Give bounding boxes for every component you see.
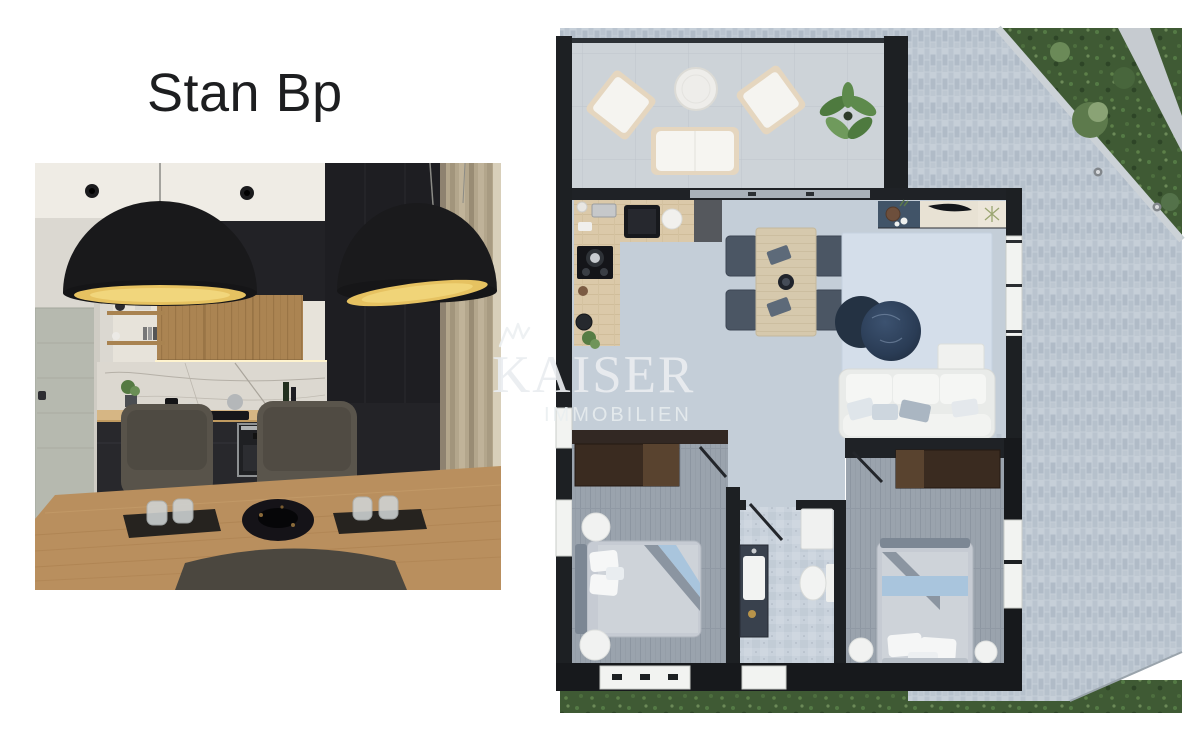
floor-plan bbox=[548, 22, 1188, 717]
pouf bbox=[580, 630, 610, 660]
dining-chair bbox=[726, 236, 758, 276]
crown-icon bbox=[498, 322, 532, 348]
dining-chair bbox=[814, 236, 846, 276]
hallway bbox=[723, 434, 845, 509]
kitchen-photo-art bbox=[35, 163, 501, 590]
pouf bbox=[849, 638, 873, 662]
terrace-round-table bbox=[675, 68, 717, 110]
pot bbox=[576, 314, 592, 330]
window-living bbox=[1006, 236, 1022, 336]
bedroom-left bbox=[556, 430, 740, 691]
pouf bbox=[582, 513, 610, 541]
coffee-table bbox=[861, 301, 921, 361]
bathroom bbox=[726, 500, 846, 691]
window-left bbox=[556, 500, 572, 556]
bed bbox=[877, 538, 973, 668]
window-left bbox=[556, 408, 572, 448]
sofa bbox=[839, 369, 995, 439]
bedroom-right bbox=[838, 438, 1022, 691]
page-title: Stan Bp bbox=[147, 64, 343, 123]
toaster bbox=[592, 204, 616, 217]
sliding-door bbox=[690, 190, 870, 198]
terrace-loveseat bbox=[651, 127, 739, 175]
kitchen-photo bbox=[35, 163, 501, 590]
terrace bbox=[556, 36, 908, 198]
sink bbox=[743, 556, 765, 600]
bed bbox=[575, 541, 701, 637]
left-wall bbox=[556, 198, 572, 663]
shower bbox=[801, 509, 833, 549]
dining-chair bbox=[726, 290, 758, 330]
window-bathroom bbox=[742, 666, 786, 689]
page: Stan Bp bbox=[0, 0, 1200, 756]
media-console bbox=[878, 200, 1008, 228]
window-bedroom-left bbox=[600, 666, 690, 689]
window-bedroom-right bbox=[1004, 520, 1022, 608]
pouf bbox=[975, 641, 997, 663]
toilet bbox=[800, 566, 826, 600]
plate bbox=[662, 209, 682, 229]
